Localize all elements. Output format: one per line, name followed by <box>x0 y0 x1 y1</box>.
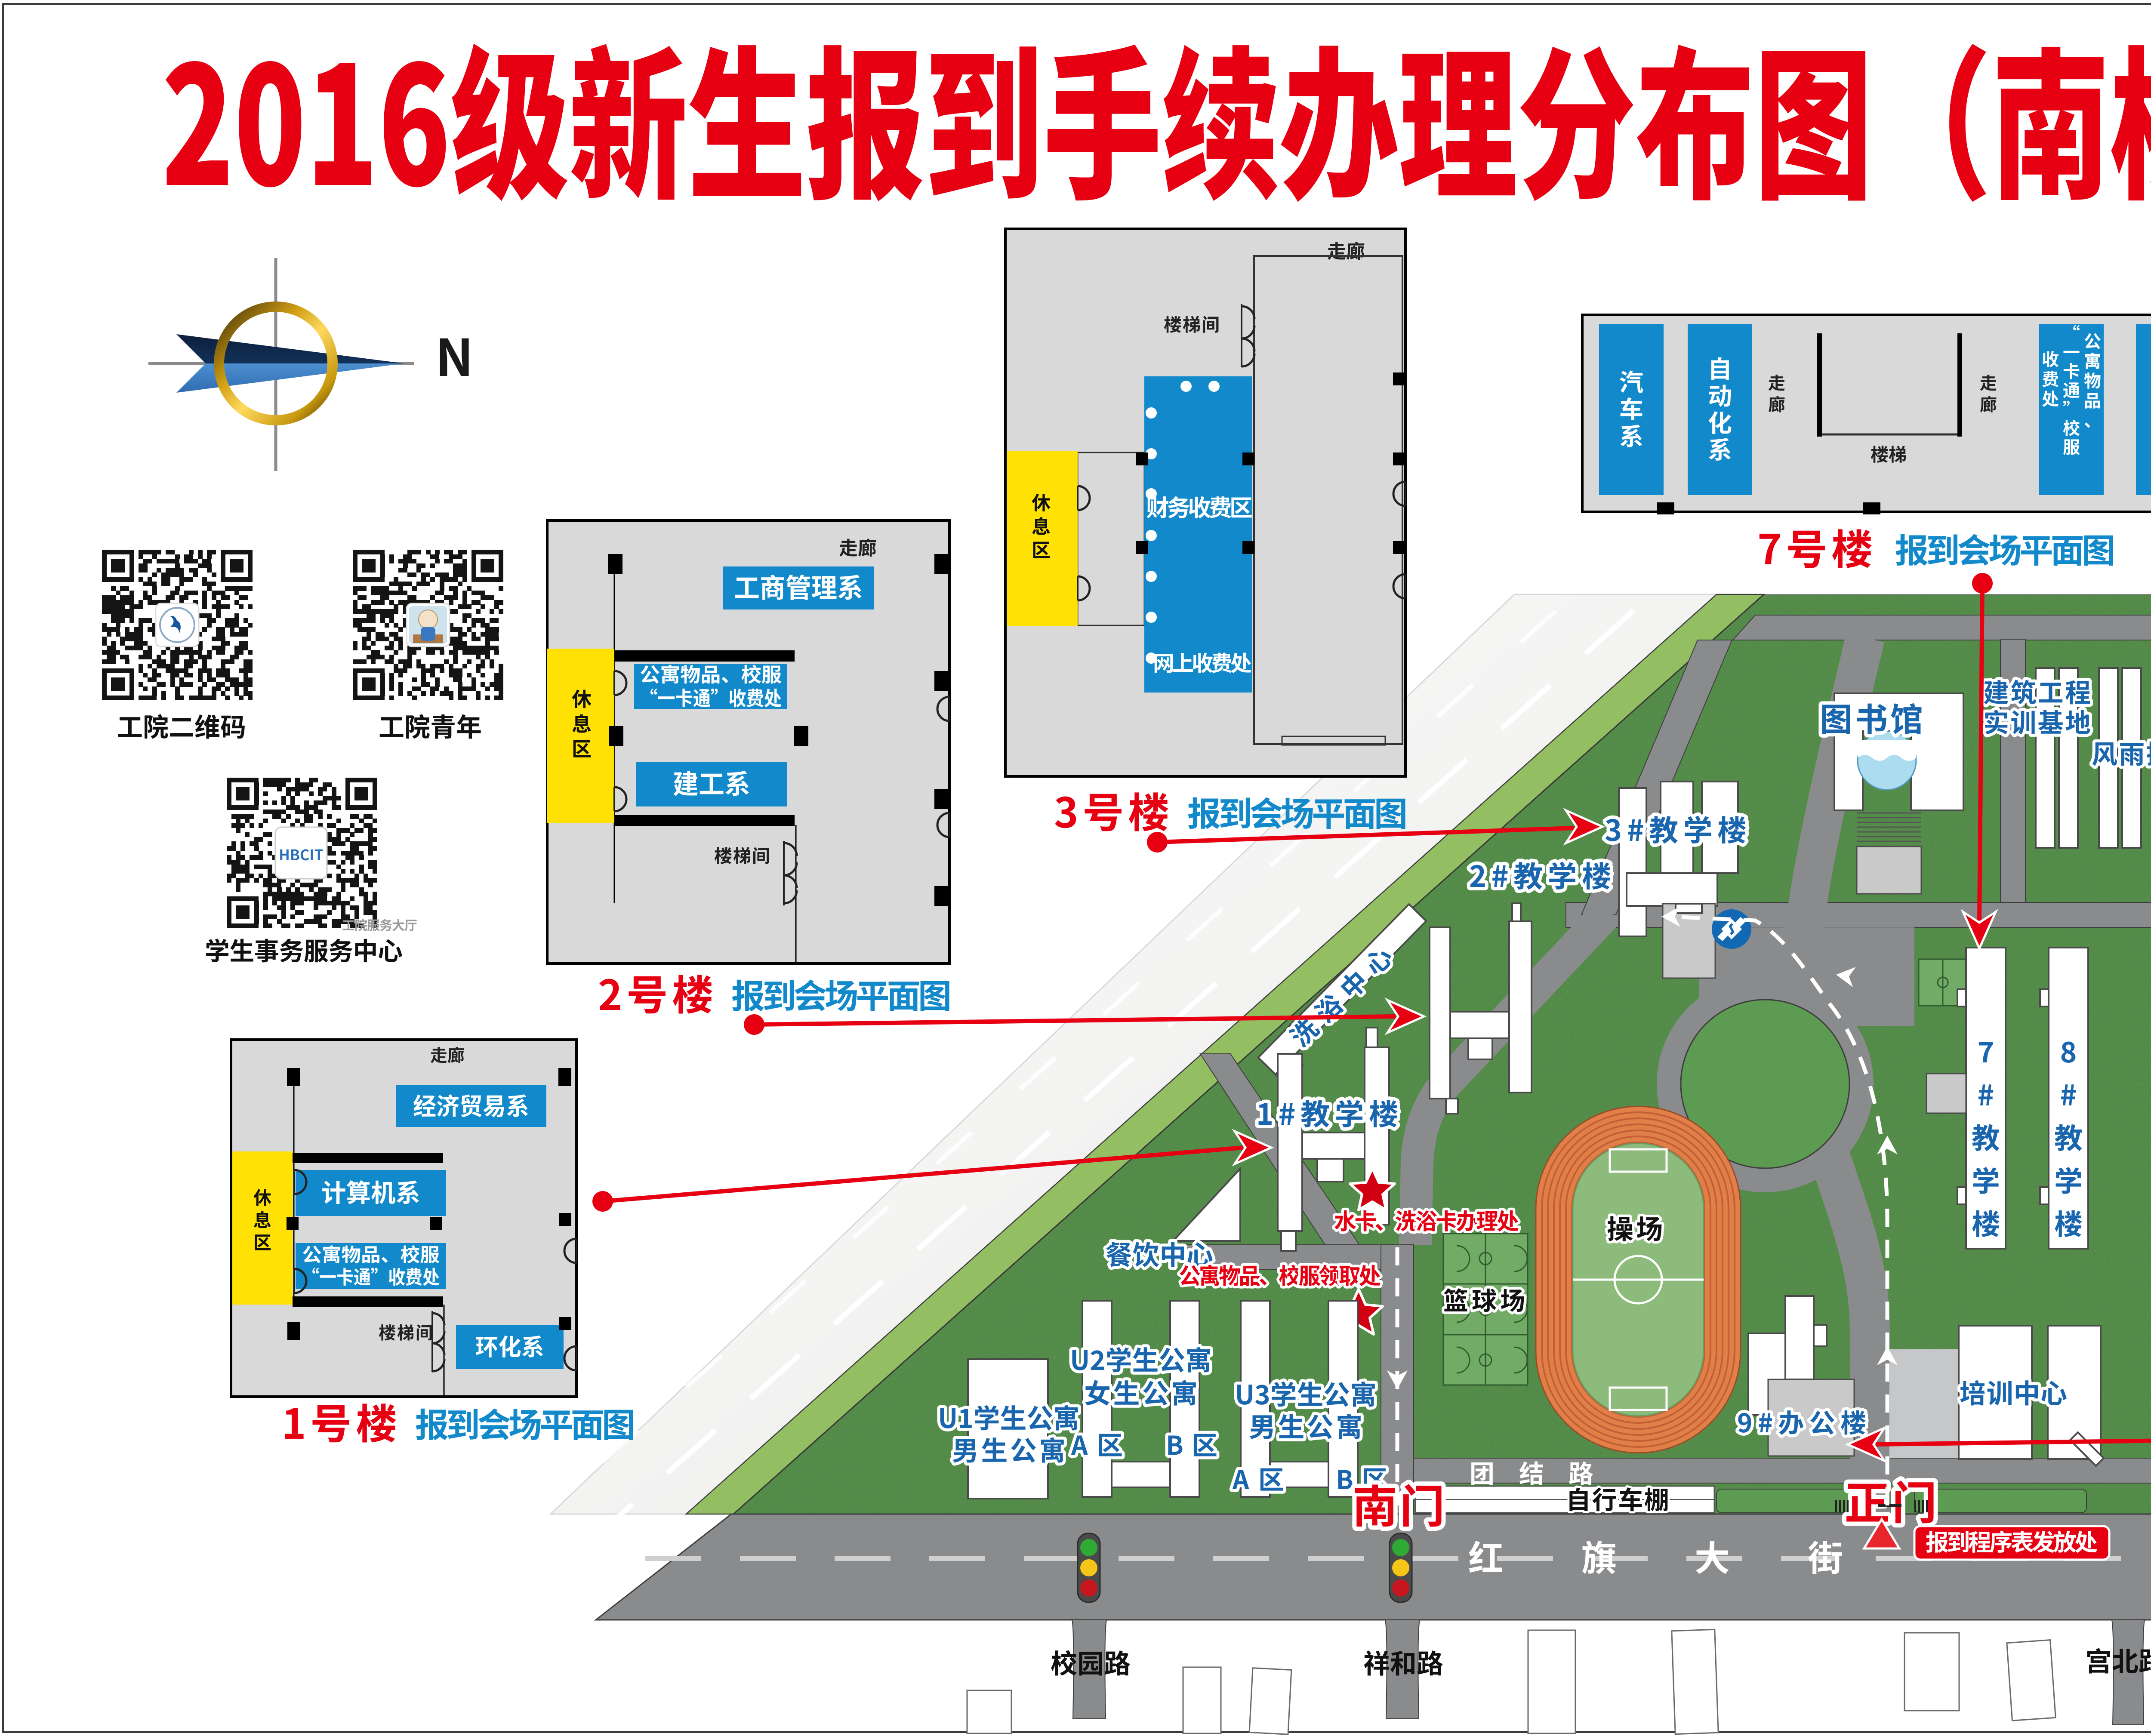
svg-text:廊: 廊 <box>1768 391 1785 416</box>
svg-text:报到会场平面图: 报到会场平面图 <box>415 1399 635 1447</box>
svg-text:楼: 楼 <box>1972 1202 2000 1243</box>
svg-text:处: 处 <box>2042 385 2059 410</box>
svg-text:、: 、 <box>2084 407 2101 432</box>
svg-text:“一卡通”收费处: “一卡通”收费处 <box>640 683 782 711</box>
svg-text:走廊: 走廊 <box>839 533 877 560</box>
svg-text:楼梯: 楼梯 <box>1871 440 1907 467</box>
svg-text:走廊: 走廊 <box>430 1042 465 1067</box>
svg-text:楼梯间: 楼梯间 <box>1164 311 1220 337</box>
svg-text:系: 系 <box>1708 431 1732 466</box>
svg-text:篮球场: 篮球场 <box>1443 1281 1525 1317</box>
svg-text:7号楼: 7号楼 <box>1757 517 1873 576</box>
svg-text:教: 教 <box>2054 1116 2083 1157</box>
svg-text:工院青年: 工院青年 <box>379 707 482 744</box>
svg-text:2号楼: 2号楼 <box>598 962 713 1022</box>
svg-text:#: # <box>2060 1073 2077 1114</box>
svg-text:区: 区 <box>572 734 592 762</box>
svg-text:报到程序表发放处: 报到程序表发放处 <box>1926 1524 2098 1557</box>
svg-text:大: 大 <box>1695 1530 1730 1581</box>
svg-text:工院二维码: 工院二维码 <box>117 707 246 744</box>
svg-text:街: 街 <box>1808 1530 1843 1581</box>
svg-text:“一卡通”收费处: “一卡通”收费处 <box>302 1262 440 1290</box>
svg-text:学: 学 <box>2054 1159 2083 1200</box>
svg-text:2016级新生报到手续办理分布图（南校区）: 2016级新生报到手续办理分布图（南校区） <box>162 0 2151 232</box>
svg-text:水卡、洗浴卡办理处: 水卡、洗浴卡办理处 <box>1334 1204 1519 1236</box>
svg-text:#: # <box>1978 1073 1994 1114</box>
svg-text:公寓物品、校服领取处: 公寓物品、校服领取处 <box>1179 1258 1381 1290</box>
svg-text:楼: 楼 <box>2054 1202 2083 1243</box>
svg-text:学: 学 <box>1972 1159 2000 1200</box>
svg-text:区: 区 <box>1032 535 1051 563</box>
svg-text:HBCIT: HBCIT <box>279 843 324 865</box>
svg-text:报到会场平面图: 报到会场平面图 <box>1895 524 2115 573</box>
svg-text:A区: A区 <box>1071 1425 1123 1462</box>
svg-text:校园路: 校园路 <box>1051 1642 1131 1681</box>
svg-text:8: 8 <box>2060 1030 2077 1071</box>
svg-text:风雨操场: 风雨操场 <box>2092 734 2151 771</box>
svg-text:培训中心: 培训中心 <box>1960 1372 2067 1411</box>
svg-text:息: 息 <box>572 709 592 737</box>
svg-text:系: 系 <box>1619 418 1643 452</box>
svg-text:祥和路: 祥和路 <box>1363 1642 1443 1681</box>
svg-text:网上收费处: 网上收费处 <box>1153 646 1252 677</box>
svg-text:财务收费区: 财务收费区 <box>1146 489 1253 523</box>
svg-text:楼梯间: 楼梯间 <box>714 842 770 868</box>
svg-text:区: 区 <box>253 1228 271 1255</box>
svg-text:廊: 廊 <box>1980 391 1997 416</box>
svg-text:A区: A区 <box>1232 1459 1284 1497</box>
svg-text:休: 休 <box>572 684 592 712</box>
svg-text:旗: 旗 <box>1581 1530 1617 1581</box>
svg-text:环化系: 环化系 <box>475 1328 544 1362</box>
svg-text:3号楼: 3号楼 <box>1054 780 1169 840</box>
svg-text:教: 教 <box>1972 1116 2000 1157</box>
svg-text:工商管理系: 工商管理系 <box>734 566 863 605</box>
svg-text:报到会场平面图: 报到会场平面图 <box>1187 788 1408 836</box>
svg-text:报到会场平面图: 报到会场平面图 <box>731 970 952 1018</box>
svg-text:楼梯间: 楼梯间 <box>379 1319 433 1344</box>
svg-text:团: 团 <box>1470 1454 1495 1490</box>
svg-text:计算机系: 计算机系 <box>321 1173 420 1209</box>
svg-text:7: 7 <box>1978 1030 1994 1071</box>
svg-text:1号楼: 1号楼 <box>282 1391 397 1451</box>
svg-text:图书馆: 图书馆 <box>1820 693 1923 741</box>
svg-text:红: 红 <box>1468 1530 1504 1581</box>
svg-text:宫北路: 宫北路 <box>2085 1640 2151 1679</box>
svg-text:结: 结 <box>1519 1454 1544 1490</box>
svg-text:服: 服 <box>2063 434 2080 459</box>
svg-text:N: N <box>435 317 473 391</box>
svg-text:经济贸易系: 经济贸易系 <box>413 1087 529 1122</box>
svg-text:建工系: 建工系 <box>673 763 750 801</box>
svg-text:B区: B区 <box>1166 1425 1217 1462</box>
svg-text:学生事务服务中心: 学生事务服务中心 <box>205 931 403 967</box>
